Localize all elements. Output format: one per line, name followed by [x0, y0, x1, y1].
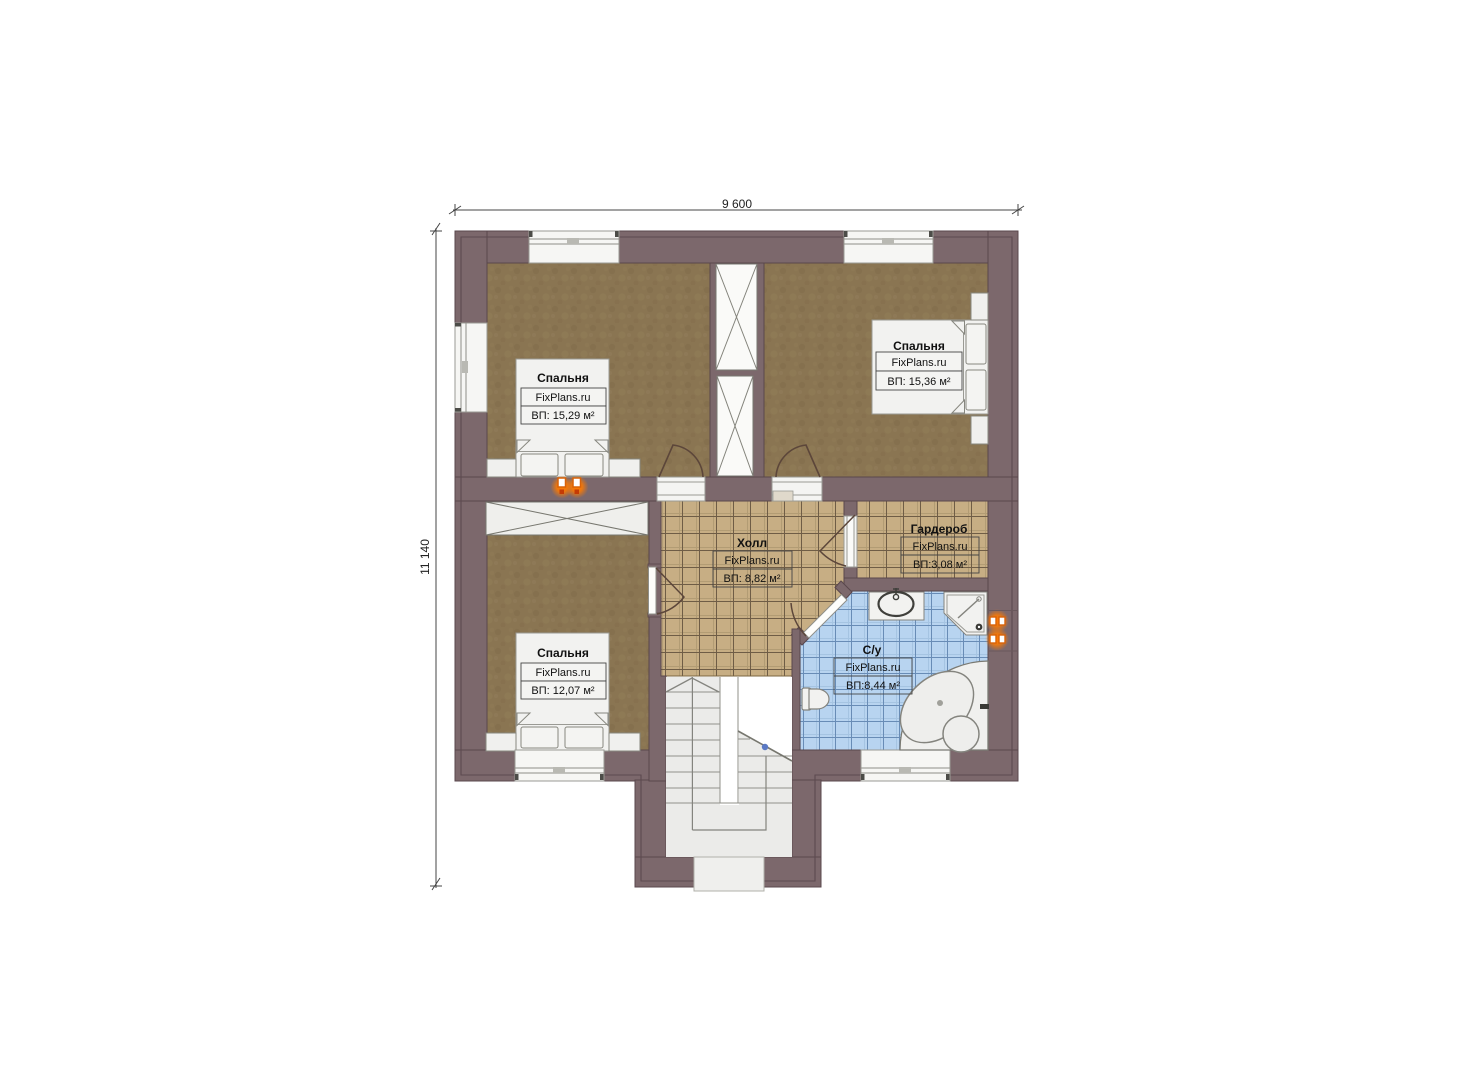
svg-text:ВП:8,44 м²: ВП:8,44 м² — [846, 680, 900, 692]
svg-text:ВП: 8,82 м²: ВП: 8,82 м² — [723, 573, 780, 585]
svg-text:FixPlans.ru: FixPlans.ru — [845, 662, 900, 674]
svg-text:Спальня: Спальня — [893, 339, 945, 353]
svg-text:ВП:3,08 м²: ВП:3,08 м² — [913, 559, 967, 571]
svg-text:FixPlans.ru: FixPlans.ru — [891, 357, 946, 369]
svg-text:ВП: 15,36 м²: ВП: 15,36 м² — [887, 376, 951, 388]
svg-text:Спальня: Спальня — [537, 371, 589, 385]
svg-text:11 140: 11 140 — [418, 539, 432, 575]
svg-text:ВП: 15,29 м²: ВП: 15,29 м² — [531, 410, 595, 422]
svg-text:9 600: 9 600 — [722, 197, 752, 211]
svg-text:FixPlans.ru: FixPlans.ru — [724, 555, 779, 567]
svg-text:Холл: Холл — [737, 536, 767, 550]
svg-text:Спальня: Спальня — [537, 646, 589, 660]
svg-text:FixPlans.ru: FixPlans.ru — [912, 541, 967, 553]
svg-text:ВП: 12,07 м²: ВП: 12,07 м² — [531, 685, 595, 697]
svg-text:FixPlans.ru: FixPlans.ru — [535, 392, 590, 404]
svg-text:FixPlans.ru: FixPlans.ru — [535, 667, 590, 679]
svg-text:С/у: С/у — [863, 643, 882, 657]
svg-text:Гардероб: Гардероб — [911, 522, 968, 536]
